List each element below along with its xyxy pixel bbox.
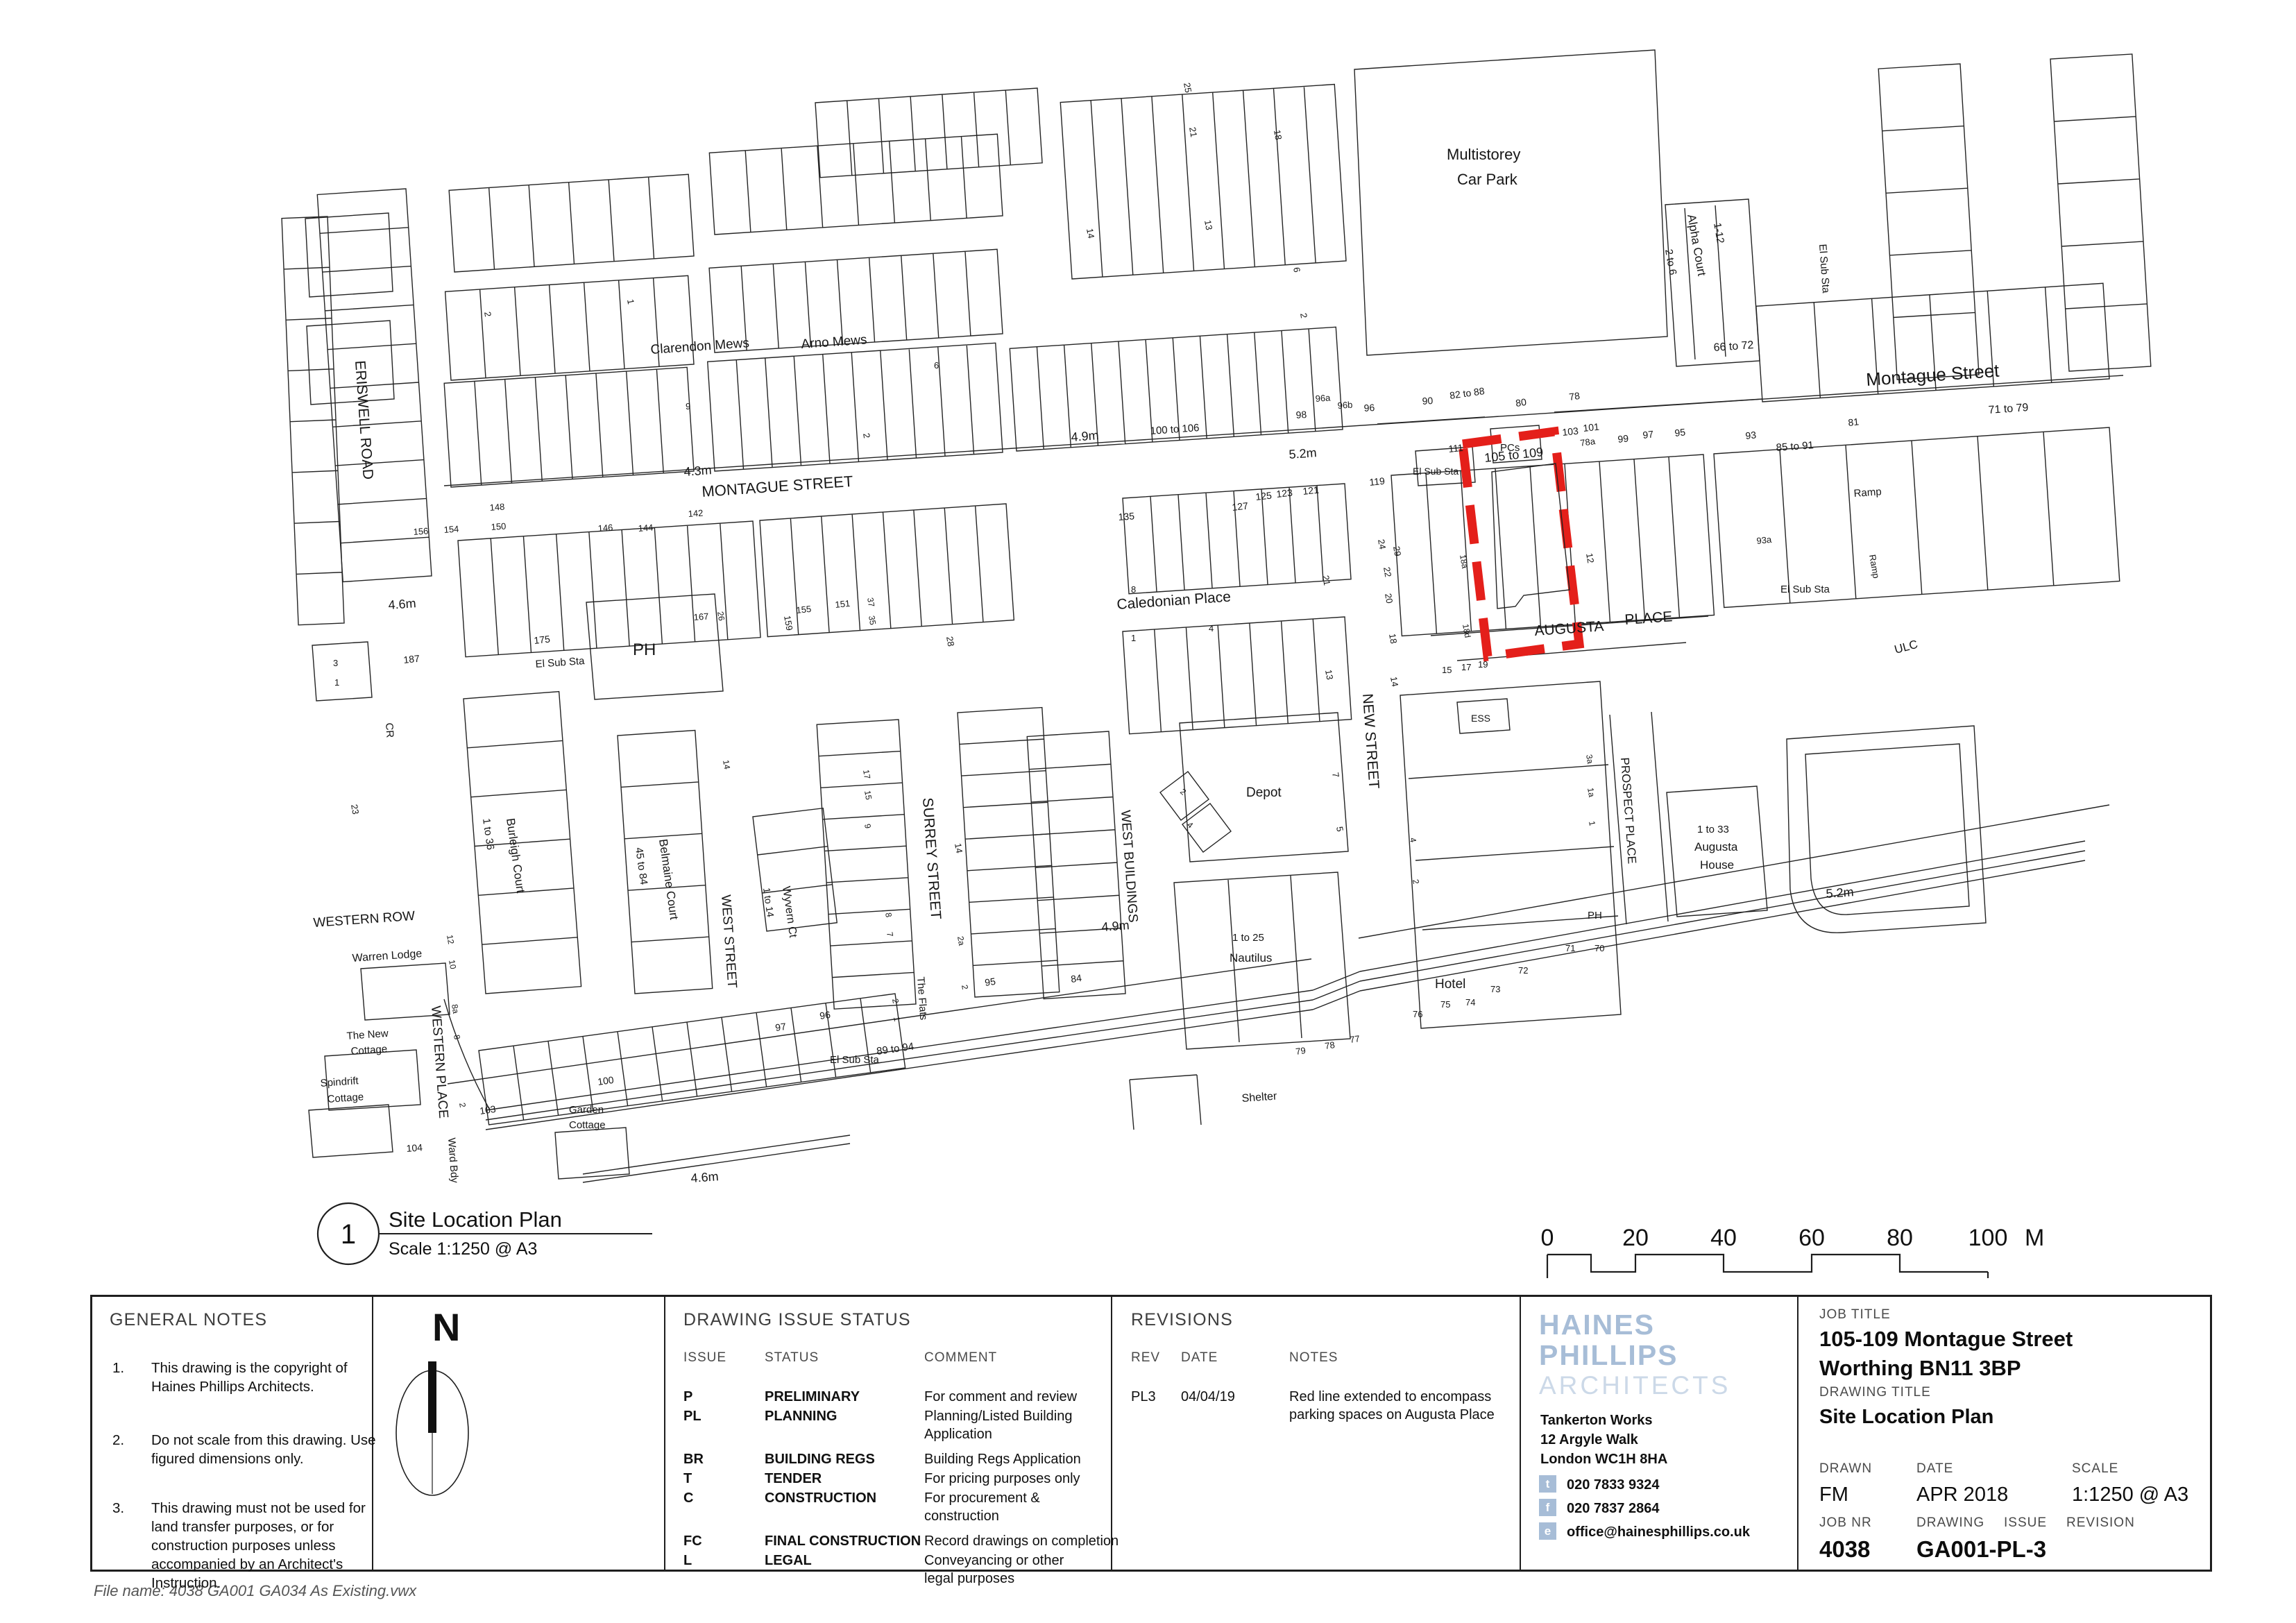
map-label: The Flats [915, 976, 929, 1021]
map-roads-and-details [305, 50, 2123, 1182]
note-text: Do not scale from this drawing. Use figu… [151, 1431, 384, 1468]
map-label: 98 [1295, 409, 1307, 420]
map-line [309, 1105, 393, 1157]
map-label: House [1700, 858, 1734, 872]
scale-bar: 020406080100 M [1541, 1225, 2045, 1278]
map-label: The New [346, 1028, 389, 1042]
panel-divider [664, 1295, 665, 1571]
plan-callout: 1 Site Location Plan Scale 1:1250 @ A3 [318, 1203, 652, 1264]
map-label: 2 [890, 998, 901, 1004]
revision-row-note: Red line extended to encompass [1289, 1388, 1491, 1406]
map-label: Arno Mews [801, 332, 867, 352]
map-line [1651, 712, 1668, 921]
phone-icon: t [1539, 1475, 1556, 1493]
map-label: 4.9m [1101, 918, 1130, 934]
map-label: 14 [721, 759, 732, 770]
map-label: 5.2m [1289, 445, 1317, 461]
map-label: 99 [1617, 432, 1629, 445]
map-label: 105 to 109 [1483, 445, 1544, 465]
map-label: PH [1588, 910, 1602, 921]
map-label: WESTERN PLACE [428, 1005, 450, 1119]
map-line [1377, 417, 1485, 424]
map-line [2050, 54, 2151, 371]
map-label: 18 [1387, 633, 1399, 645]
map-label: 18a [1458, 554, 1470, 569]
map-line [1714, 427, 2120, 608]
scale-bar-ticks: 020406080100 [1541, 1225, 2008, 1251]
map-label: WEST STREET [718, 894, 739, 989]
plan-scale: Scale 1:1250 @ A3 [389, 1239, 537, 1259]
map-line [458, 521, 760, 657]
map-line [307, 321, 394, 405]
map-label: 4 [1408, 837, 1418, 843]
map-label: 24 [1376, 538, 1388, 550]
date-value: APR 2018 [1916, 1484, 2008, 1506]
drawing-issue-revision-value: GA001-PL-3 [1916, 1536, 2046, 1563]
map-label: 154 [443, 524, 459, 535]
map-label: El Sub Sta [830, 1054, 880, 1066]
map-label: CR [383, 722, 396, 738]
firm-address-line: 12 Argyle Walk [1540, 1431, 1638, 1449]
map-label: 20 [1383, 593, 1395, 604]
map-label: 80 [1515, 396, 1527, 409]
map-label: 100 to 106 [1150, 422, 1200, 437]
map-label: 78 [1568, 390, 1581, 402]
scale-bar-tick: 60 [1798, 1225, 1825, 1251]
map-label: 66 to 72 [1713, 339, 1754, 354]
map-label: 12 [445, 934, 456, 945]
map-label: 125 [1255, 490, 1273, 502]
map-label: 14 [1388, 676, 1400, 688]
map-label: WEST BUILDINGS [1118, 810, 1140, 923]
map-line [464, 692, 581, 994]
map-label: 6 [934, 360, 939, 371]
map-label: 15 [862, 790, 874, 801]
map-line [709, 134, 1003, 235]
map-line [958, 708, 1060, 997]
issue-row-comment: Planning/Listed Building [924, 1407, 1073, 1425]
map-label: 95 [1674, 426, 1686, 439]
map-label: 23 [349, 804, 361, 815]
issue-status-header: DRAWING ISSUE STATUS [683, 1310, 911, 1330]
map-line [1878, 64, 1979, 380]
map-label: SURREY STREET [919, 797, 944, 920]
map-label: MONTAGUE STREET [701, 473, 854, 500]
scale-bar-tick: 80 [1887, 1225, 1913, 1251]
issue-row-cell: PRELIMINARY [765, 1388, 860, 1406]
map-label: 5 [1334, 826, 1345, 833]
map-label: 37 [865, 597, 876, 608]
map-label: 121 [1302, 484, 1320, 497]
issue-row-cell: P [683, 1388, 692, 1406]
map-label: 12 [1584, 552, 1596, 564]
date-col-header: DATE [1181, 1350, 1218, 1366]
scale-bar-tick: 100 [1968, 1225, 2008, 1251]
map-label: 1 [625, 298, 636, 305]
job-title-label: JOB TITLE [1819, 1307, 1891, 1323]
map-label: 8 [452, 1034, 462, 1040]
map-label: 135 [1118, 510, 1135, 522]
map-line [583, 1135, 850, 1174]
drawing-title-label: DRAWING TITLE [1819, 1385, 1931, 1400]
map-label: 96b [1337, 400, 1353, 411]
map-label: 2 [1178, 787, 1188, 797]
panel-divider [1520, 1295, 1521, 1571]
map-label: Garden [569, 1104, 604, 1116]
map-label: Multistorey [1447, 146, 1520, 163]
revision-row-note: parking spaces on Augusta Place [1289, 1406, 1495, 1424]
map-line [555, 1128, 629, 1179]
map-label: 148 [489, 502, 505, 513]
issue-row-comment: construction [924, 1507, 999, 1525]
map-label: 79 [1295, 1045, 1306, 1057]
contact-value: office@hainesphillips.co.uk [1567, 1523, 1750, 1541]
map-label: 1 to 33 [1697, 824, 1729, 835]
scale-value: 1:1250 @ A3 [2072, 1484, 2188, 1506]
issue-row-cell: T [683, 1470, 692, 1488]
issue-row-cell: FC [683, 1532, 702, 1550]
map-label: 2 [482, 311, 493, 318]
map-label: Cottage [327, 1091, 364, 1105]
map-label: 103 [479, 1103, 497, 1116]
map-label: 8 [883, 912, 894, 918]
revision-row-cell: PL3 [1131, 1388, 1156, 1406]
map-label: 15 [1442, 665, 1452, 675]
drawn-label: DRAWN [1819, 1461, 1872, 1477]
map-label: 103 [1562, 425, 1579, 438]
panel-divider [1797, 1295, 1798, 1571]
map-label: 84 [1070, 972, 1082, 985]
map-label: 4.3m [683, 463, 712, 479]
map-label: 9 [862, 823, 873, 829]
map-label: 78 [1324, 1039, 1335, 1051]
map-line [1291, 876, 1302, 1038]
map-label: 10 [447, 959, 458, 970]
note-number: 1. [112, 1359, 137, 1377]
map-label: 81 [1848, 416, 1860, 428]
map-label: 4.6m [690, 1169, 719, 1185]
date-label: DATE [1916, 1461, 1953, 1477]
map-label: 97 [1642, 428, 1654, 441]
map-line [1415, 847, 1614, 860]
map-label: Ward Bdy [445, 1137, 461, 1184]
map-label: 156 [413, 526, 429, 537]
map-labels: ERISWELL ROADMONTAGUE STREETMontague Str… [313, 82, 2029, 1185]
revision-nr-label: REVISION [2066, 1515, 2135, 1531]
map-line [1123, 484, 1351, 594]
map-label: Clarendon Mews [650, 336, 750, 357]
firm-address-line: London WC1H 8HA [1540, 1450, 1667, 1468]
issue-row-comment: For procurement & [924, 1489, 1040, 1507]
map-label: 5.2m [1826, 885, 1854, 901]
map-label: 2a [955, 935, 967, 946]
map-label: Augusta [1694, 840, 1738, 853]
scale-bar-tick: 20 [1622, 1225, 1649, 1251]
map-label: 97 [774, 1021, 787, 1033]
map-line [1160, 772, 1209, 820]
map-line [760, 504, 1014, 637]
map-label: 13 [1323, 669, 1335, 681]
scale-bar-steps [1547, 1255, 1988, 1278]
issue-nr-label: ISSUE [2004, 1515, 2047, 1531]
map-line [815, 88, 1042, 178]
map-line [312, 642, 372, 701]
map-line [1313, 981, 1360, 1000]
revision-row-cell: 04/04/19 [1181, 1388, 1235, 1406]
map-label: 82 to 88 [1449, 385, 1486, 401]
map-label: 6 [1291, 266, 1302, 273]
map-line [1027, 731, 1125, 999]
map-label: 14 [953, 842, 964, 854]
map-label: ERISWELL ROAD [352, 360, 376, 480]
map-label: El Sub Sta [1780, 584, 1830, 595]
map-label: 72 [1518, 965, 1528, 976]
map-label: 93a [1756, 534, 1773, 546]
map-label: 85 to 91 [1776, 439, 1814, 454]
map-label: 74 [1465, 997, 1475, 1008]
map-label: 151 [835, 598, 851, 610]
map-label: 21 [1320, 575, 1332, 586]
comment-col-header: COMMENT [924, 1350, 997, 1366]
notes-col-header: NOTES [1289, 1350, 1338, 1366]
map-label: 101 [1583, 421, 1600, 434]
map-label: 96a [1315, 392, 1331, 404]
map-line [1400, 681, 1621, 1028]
map-label: 77 [1349, 1033, 1360, 1045]
issue-row-cell: C [683, 1489, 693, 1507]
map-label: 1 to 25 [1232, 932, 1264, 944]
issue-row-cell: PLANNING [765, 1407, 837, 1425]
map-label: 8 [1131, 584, 1136, 595]
map-label: ESS [1471, 713, 1490, 724]
map-label: 1 [334, 677, 339, 688]
north-arrow: N [375, 1305, 527, 1513]
map-label: 1-12 [1711, 222, 1726, 245]
issue-col-header: ISSUE [683, 1350, 726, 1366]
map-label: 1 [1131, 633, 1136, 643]
map-label: 4.9m [1071, 428, 1099, 444]
drawing-sheet: ERISWELL ROADMONTAGUE STREETMontague Str… [0, 0, 2296, 1623]
map-label: 90 [1422, 395, 1434, 407]
map-label: 123 [1276, 487, 1293, 500]
map-label: 3a [1584, 754, 1595, 765]
map-label: Ramp [1853, 486, 1882, 500]
north-needle [428, 1361, 436, 1433]
map-label: 35 [867, 615, 878, 626]
map-label: 26 [715, 611, 726, 622]
plan-title: Site Location Plan [389, 1207, 562, 1232]
scale-bar-unit: M [2025, 1225, 2044, 1251]
map-label: 21 [1187, 126, 1199, 138]
map-label: 7 [885, 931, 895, 937]
firm-name-haines: HAINES [1539, 1309, 1655, 1341]
map-label: 1a [1585, 787, 1597, 798]
map-label: PLACE [1624, 609, 1673, 628]
map-line [1130, 1075, 1201, 1130]
map-label: Depot [1246, 785, 1282, 800]
map-label: 7 [1330, 772, 1341, 779]
issue-row-comment: Building Regs Application [924, 1450, 1081, 1468]
map-label: 95 [984, 976, 996, 988]
map-label: Wyvern Ct [780, 885, 799, 939]
map-label: 159 [782, 615, 795, 631]
map-label: Spindrift [320, 1075, 359, 1089]
map-label: Ramp [1867, 554, 1882, 579]
note-number: 3. [112, 1499, 137, 1518]
map-label: El Sub Sta [1817, 244, 1832, 294]
map-line [1313, 971, 1360, 990]
rev-col-header: REV [1131, 1350, 1160, 1366]
map-label: 89 to 94 [876, 1041, 915, 1057]
map-label: 93 [1745, 429, 1757, 441]
map-label: 3 [333, 658, 338, 668]
map-label: 146 [597, 522, 613, 534]
map-label: Cottage [350, 1043, 388, 1057]
map-label: 71 [1565, 943, 1575, 953]
map-label: Shelter [1241, 1090, 1277, 1105]
scale-bar-tick: 0 [1541, 1225, 1554, 1251]
map-label: 2 [1298, 312, 1309, 319]
issue-row-cell: L [683, 1552, 692, 1570]
map-label: 142 [688, 508, 704, 519]
map-line [445, 275, 694, 380]
map-label: Nautilus [1230, 951, 1272, 965]
map-label: Warren Lodge [352, 948, 423, 965]
map-label: 8a [450, 1003, 461, 1014]
map-label: 70 [1595, 943, 1604, 953]
drawing-title: Site Location Plan [1819, 1406, 1993, 1429]
map-label: 100 [597, 1074, 615, 1087]
map-label: 175 [534, 634, 551, 646]
map-label: 155 [796, 604, 812, 615]
map-label: 187 [403, 653, 420, 665]
issue-row-cell: FINAL CONSTRUCTION [765, 1532, 921, 1550]
issue-row-comment: Conveyancing or other [924, 1552, 1064, 1570]
firm-name-architects: ARCHITECTS [1539, 1371, 1730, 1400]
map-label: Hotel [1435, 977, 1465, 992]
map-label: 2 [960, 984, 970, 990]
map-label: 4 [1209, 623, 1214, 634]
map-label: 96 [1363, 402, 1375, 414]
map-label: El Sub Sta [535, 655, 586, 670]
map-label: 78a [1579, 436, 1596, 448]
map-label: ULC [1893, 638, 1919, 656]
issue-row-cell: CONSTRUCTION [765, 1489, 876, 1507]
map-label: PH [633, 640, 656, 659]
map-label: 2 [457, 1102, 468, 1108]
map-line [444, 999, 489, 1109]
email-icon: e [1539, 1522, 1556, 1540]
job-title-line1: 105-109 Montague Street [1819, 1327, 2073, 1352]
map-line [448, 959, 1311, 1084]
map-line [1060, 85, 1346, 279]
map-label: 150 [491, 521, 507, 532]
issue-row-cell: LEGAL [765, 1552, 812, 1570]
plan-number: 1 [341, 1219, 356, 1250]
map-label: Belmaine Court [656, 838, 681, 921]
note-text: This drawing must not be used for land t… [151, 1499, 384, 1592]
fax-icon: f [1539, 1499, 1556, 1516]
map-label: 4.6m [388, 596, 416, 612]
map-label: 2 [861, 432, 872, 439]
map-line [1360, 860, 2085, 991]
map-label: 76 [1413, 1009, 1422, 1019]
map-label: 13 [1202, 219, 1214, 231]
issue-row-comment: Record drawings on completion [924, 1532, 1119, 1550]
map-label: Burleigh Court [504, 817, 527, 894]
note-text: This drawing is the copyright of Haines … [151, 1359, 384, 1396]
map-line [1787, 726, 1986, 933]
map-label: El Sub Sta [1413, 466, 1459, 477]
contact-value: 020 7833 9324 [1567, 1476, 1659, 1494]
map-label: Car Park [1457, 171, 1518, 188]
map-label: Montague Street [1865, 360, 2000, 390]
map-label: 45 to 84 [633, 847, 649, 885]
issue-row-cell: BUILDING REGS [765, 1450, 875, 1468]
map-label: AUGUSTA [1534, 618, 1604, 639]
map-line [1123, 617, 1352, 734]
issue-row-cell: BR [683, 1450, 704, 1468]
map-label: 28 [944, 636, 956, 647]
map-line [1354, 50, 1667, 355]
map-label: 9 [686, 401, 690, 411]
map-label: 18 [1272, 129, 1284, 141]
drawn-value: FM [1819, 1484, 1848, 1506]
map-line [444, 367, 694, 487]
drawing-nr-label: DRAWING [1916, 1515, 1984, 1531]
map-label: 167 [693, 611, 709, 622]
issue-row-comment: Application [924, 1425, 992, 1443]
map-label: 73 [1490, 984, 1500, 994]
issue-row-cell: TENDER [765, 1470, 822, 1488]
map-label: 71 to 79 [1988, 402, 2029, 416]
map-label: 29 [1391, 545, 1403, 557]
map-label: 25 [1182, 82, 1193, 94]
firm-address-line: Tankerton Works [1540, 1411, 1653, 1429]
map-line [1409, 765, 1608, 779]
contact-value: 020 7837 2864 [1567, 1499, 1659, 1518]
issue-row-comment: For pricing purposes only [924, 1470, 1080, 1488]
general-notes-header: GENERAL NOTES [110, 1310, 267, 1330]
north-letter: N [432, 1305, 460, 1349]
map-label: 14 [1085, 228, 1096, 239]
map-label: 127 [1232, 500, 1249, 513]
map-label: 144 [638, 522, 654, 534]
job-nr-value: 4038 [1819, 1536, 1870, 1563]
map-line [1359, 805, 2109, 938]
map-label: 96 [819, 1009, 831, 1021]
issue-row-comment: For comment and review [924, 1388, 1077, 1406]
map-label: 111 [1448, 442, 1464, 454]
map-label: WESTERN ROW [313, 909, 416, 931]
job-title-line2: Worthing BN11 3BP [1819, 1356, 2021, 1381]
job-nr-label: JOB NR [1819, 1515, 1872, 1531]
map-label: PROSPECT PLACE [1618, 757, 1639, 865]
scale-label: SCALE [2072, 1461, 2118, 1477]
map-label: 1 [892, 1016, 902, 1022]
issue-row-comment: legal purposes [924, 1570, 1014, 1588]
map-label: 18d [1461, 623, 1472, 638]
map-line [449, 174, 694, 272]
map-line [305, 213, 393, 297]
note-number: 2. [112, 1431, 137, 1450]
scale-bar-tick: 40 [1710, 1225, 1737, 1251]
map-label: 75 [1440, 999, 1450, 1010]
map-line [1313, 991, 1360, 1010]
map-label: 22 [1381, 566, 1393, 578]
map-label: NEW STREET [1359, 693, 1382, 790]
panel-divider [1111, 1295, 1112, 1571]
